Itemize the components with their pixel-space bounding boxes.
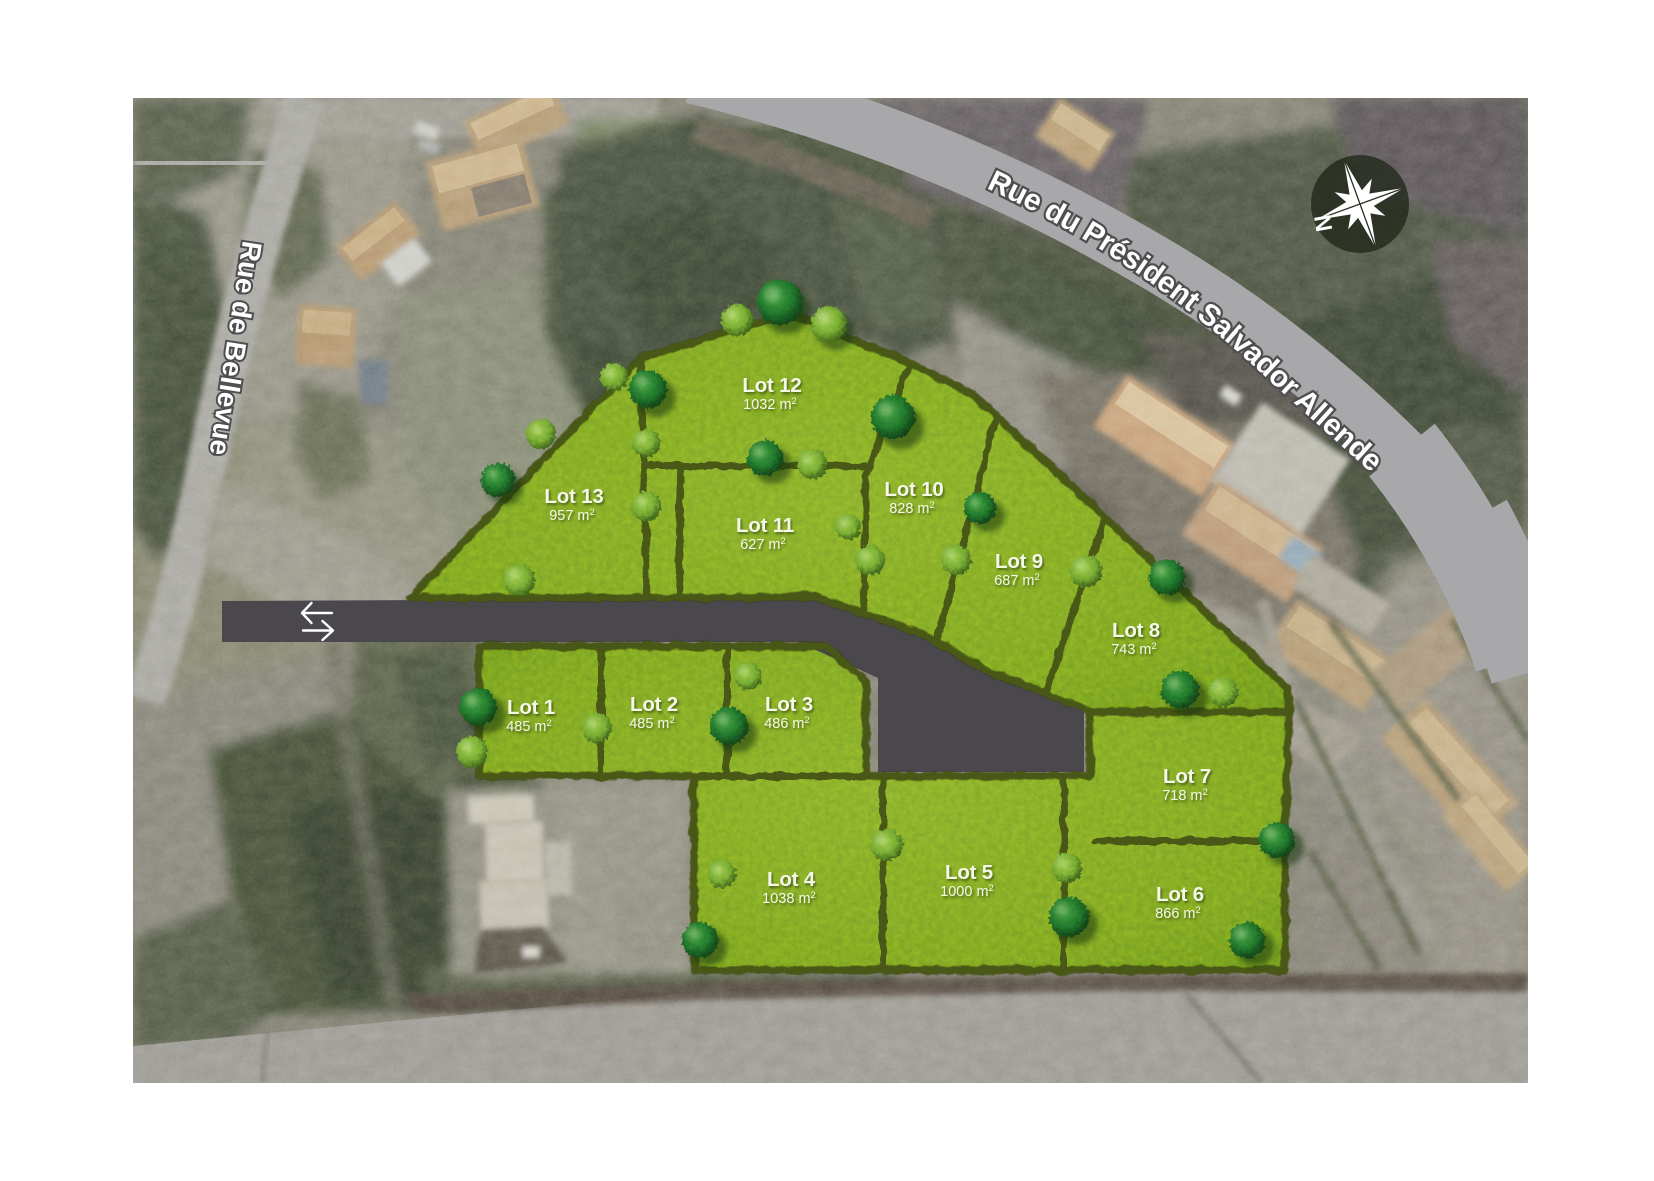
svg-text:1032 m2: 1032 m2 xyxy=(743,396,797,413)
svg-text:486 m2: 486 m2 xyxy=(764,715,810,732)
svg-text:866 m2: 866 m2 xyxy=(1155,905,1201,922)
svg-text:Lot 5: Lot 5 xyxy=(945,861,993,884)
svg-text:Lot 10: Lot 10 xyxy=(884,478,943,501)
svg-text:957 m2: 957 m2 xyxy=(549,507,595,524)
svg-text:Lot 2: Lot 2 xyxy=(630,693,678,716)
svg-text:687 m2: 687 m2 xyxy=(994,572,1040,589)
svg-text:Lot 1: Lot 1 xyxy=(507,696,555,719)
svg-text:Lot 12: Lot 12 xyxy=(742,374,801,397)
svg-text:Lot 7: Lot 7 xyxy=(1163,765,1211,788)
svg-text:627 m2: 627 m2 xyxy=(740,536,786,553)
svg-text:718 m2: 718 m2 xyxy=(1162,787,1208,804)
svg-text:485 m2: 485 m2 xyxy=(506,718,552,735)
svg-text:Lot 4: Lot 4 xyxy=(767,868,816,891)
svg-text:Lot 11: Lot 11 xyxy=(736,514,794,537)
svg-text:Lot 3: Lot 3 xyxy=(765,693,813,716)
svg-text:485 m2: 485 m2 xyxy=(629,715,675,732)
svg-text:Lot 8: Lot 8 xyxy=(1112,619,1160,642)
svg-text:Lot 6: Lot 6 xyxy=(1156,883,1204,906)
svg-text:Lot 13: Lot 13 xyxy=(544,485,603,508)
svg-text:743 m2: 743 m2 xyxy=(1111,641,1157,658)
svg-text:1000 m2: 1000 m2 xyxy=(940,883,994,900)
svg-text:1038 m2: 1038 m2 xyxy=(762,890,816,907)
svg-text:828 m2: 828 m2 xyxy=(889,500,935,517)
svg-text:Lot 9: Lot 9 xyxy=(995,550,1043,573)
